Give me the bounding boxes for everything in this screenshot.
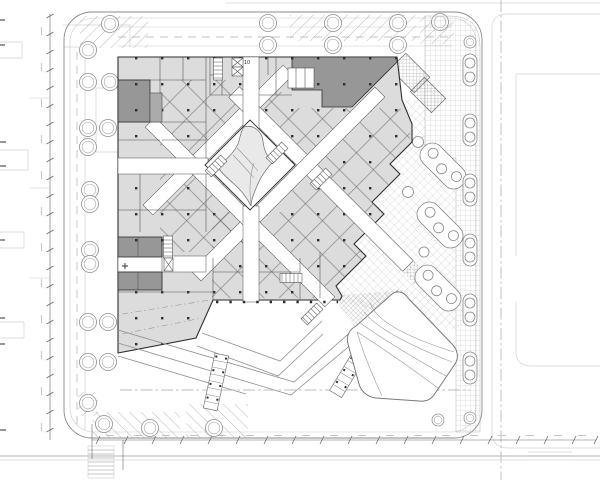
architectural-floor-plan: 10 [0, 0, 600, 480]
room-number-label: 10 [244, 60, 250, 66]
planted-walkway [203, 353, 228, 411]
site-plan-canvas: 10 [0, 0, 600, 480]
